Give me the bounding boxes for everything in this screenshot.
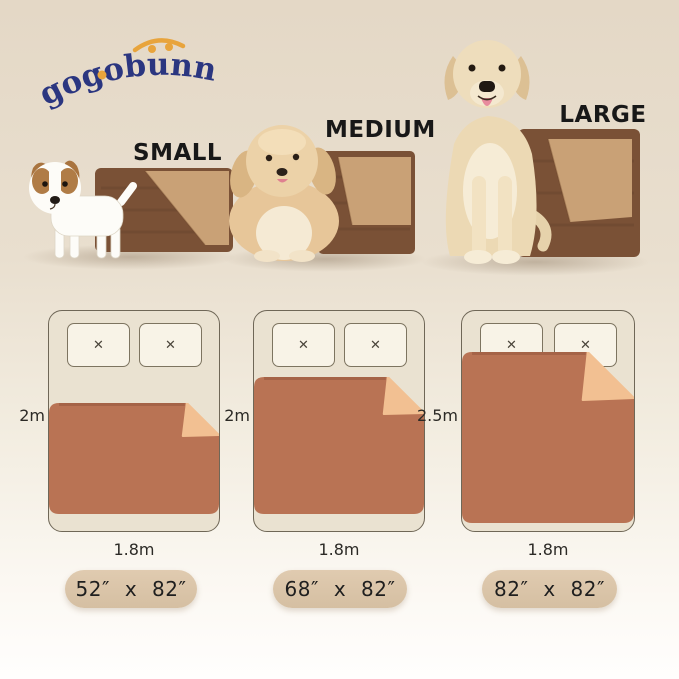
dog-photo-large — [422, 26, 552, 266]
blanket-overlay-small — [49, 403, 219, 514]
pillow-x-icon: ✕ — [93, 338, 104, 353]
dog-tail — [121, 186, 133, 202]
size-label-small: SMALL — [133, 140, 213, 166]
dog-paw — [254, 250, 280, 262]
dog-nose — [277, 168, 288, 176]
pillow-left: ✕ — [67, 323, 130, 367]
size-pill-small: 52″ x 82″ — [65, 570, 197, 608]
dog-paw — [464, 250, 492, 264]
product-infographic: gogobunny SMALL — [0, 0, 679, 679]
dog-eye — [499, 65, 506, 72]
pillow-x-icon: ✕ — [298, 338, 309, 353]
dog-eye — [293, 154, 299, 160]
bed-diagram-large: ✕ ✕ — [461, 310, 635, 532]
bed-diagram-medium: ✕ ✕ — [253, 310, 425, 532]
brand-logo-text: gogobunny — [38, 26, 219, 113]
pillow-right: ✕ — [344, 323, 407, 367]
width-label-small: 1.8m — [94, 540, 174, 559]
size-pill-large: 82″ x 82″ — [482, 570, 617, 608]
bed-diagram-small: ✕ ✕ — [48, 310, 220, 532]
pillow-x-icon: ✕ — [165, 338, 176, 353]
pillow-x-icon: ✕ — [580, 338, 591, 353]
blanket-fold-corner — [583, 352, 634, 400]
pillow-left: ✕ — [272, 323, 335, 367]
size-pill-medium: 68″ x 82″ — [273, 570, 407, 608]
dog-eye — [266, 155, 272, 161]
dog-eye — [469, 65, 476, 72]
logo-o-dot — [98, 71, 107, 80]
width-label-medium: 1.8m — [299, 540, 379, 559]
blanket-overlay-medium — [254, 377, 424, 514]
pillow-right: ✕ — [139, 323, 202, 367]
dog-eye — [42, 181, 48, 187]
length-label-small: 2m — [6, 406, 45, 425]
blanket-overlay-large — [462, 352, 634, 523]
pillow-x-icon: ✕ — [370, 338, 381, 353]
dog-paw — [289, 250, 315, 262]
pillow-x-icon: ✕ — [506, 338, 517, 353]
length-label-large: 2.5m — [413, 406, 458, 425]
dog-nose — [50, 196, 60, 204]
dog-photo-small — [25, 148, 140, 263]
dog-nose — [479, 81, 495, 92]
length-label-medium: 2m — [211, 406, 250, 425]
width-label-large: 1.8m — [508, 540, 588, 559]
dog-paw — [492, 250, 520, 264]
size-label-large: LARGE — [558, 102, 648, 128]
size-label-medium: MEDIUM — [325, 117, 417, 143]
dog-eye — [62, 181, 68, 187]
brand-logo: gogobunny — [38, 26, 228, 126]
